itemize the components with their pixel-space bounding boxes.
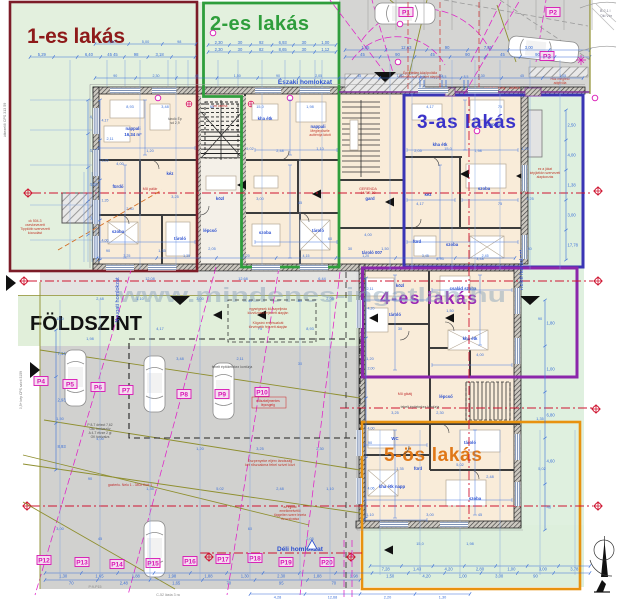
svg-text:90: 90 [368, 441, 372, 445]
svg-text:1,05: 1,05 [559, 74, 566, 78]
svg-text:2,05: 2,05 [315, 74, 322, 78]
svg-text:1,10: 1,10 [136, 297, 143, 301]
svg-text:tároló: tároló [312, 228, 324, 233]
svg-text:3-as lakás: 3-as lakás [417, 112, 516, 133]
svg-text:3,00: 3,00 [495, 574, 504, 579]
svg-text:4,00: 4,00 [102, 239, 109, 243]
svg-text:P13: P13 [76, 560, 88, 567]
svg-text:1,98: 1,98 [466, 542, 473, 546]
svg-text:3,00: 3,00 [568, 213, 577, 218]
svg-text:1,00: 1,00 [321, 40, 330, 45]
svg-text:8,5: 8,5 [464, 75, 469, 79]
svg-text:sd 2,9: sd 2,9 [170, 121, 179, 125]
svg-text:lépcső: lépcső [439, 394, 453, 399]
svg-text:P19: P19 [280, 560, 292, 567]
svg-text:45: 45 [195, 74, 199, 78]
svg-text:45: 45 [430, 52, 435, 57]
svg-text:30: 30 [238, 47, 243, 52]
svg-text:3,25: 3,25 [102, 159, 109, 163]
svg-text:15,0: 15,0 [256, 105, 263, 109]
svg-text:2,48: 2,48 [120, 581, 129, 586]
svg-text:14/7/5,28: 14/7/5,28 [361, 191, 376, 195]
svg-text:4,20: 4,20 [445, 567, 454, 572]
svg-text:két rőszcakma febel szível köz: két rőszcakma febel szível közt [245, 463, 295, 467]
svg-text:4,00: 4,00 [116, 162, 123, 166]
svg-text:12,63: 12,63 [401, 45, 412, 50]
svg-text:45 45: 45 45 [107, 52, 118, 57]
svg-text:1-es lakás: 1-es lakás [27, 25, 125, 48]
svg-text:1,20: 1,20 [366, 357, 373, 361]
svg-text:1,12: 1,12 [321, 47, 330, 52]
svg-text:P1: P1 [402, 10, 410, 17]
svg-text:P14: P14 [111, 562, 123, 569]
svg-text:82: 82 [259, 47, 264, 52]
svg-text:6,40: 6,40 [85, 52, 94, 57]
svg-text:98: 98 [177, 40, 181, 44]
svg-text:15,0: 15,0 [444, 147, 451, 151]
svg-text:2,80: 2,80 [476, 567, 485, 572]
svg-text:95: 95 [279, 581, 284, 586]
svg-text:1,10: 1,10 [316, 147, 323, 151]
svg-text:1,88: 1,88 [132, 574, 141, 579]
svg-text:2,48: 2,48 [486, 475, 493, 479]
svg-text:P18: P18 [249, 556, 261, 563]
svg-text:gazterlu. Nelu 1 - 340z Kurt 1: gazterlu. Nelu 1 - 340z Kurt 1 [108, 483, 152, 487]
svg-text:90: 90 [538, 317, 542, 321]
svg-text:16,34 m²: 16,34 m² [124, 132, 142, 137]
svg-text:2,05: 2,05 [414, 149, 421, 153]
svg-text:70: 70 [69, 581, 74, 586]
svg-text:92: 92 [259, 40, 264, 45]
svg-text:1,50: 1,50 [234, 74, 241, 78]
svg-text:2,20: 2,20 [384, 596, 391, 600]
svg-text:12,68: 12,68 [328, 596, 338, 600]
svg-text:1,38: 1,38 [568, 183, 577, 188]
svg-text:alapkonzás: alapkonzás [537, 175, 554, 179]
svg-text:2,48: 2,48 [276, 487, 283, 491]
svg-text:4,28: 4,28 [274, 596, 281, 600]
svg-text:5,02: 5,02 [538, 467, 545, 471]
svg-text:P4: P4 [37, 379, 45, 386]
svg-text:OK forrlvalzs: OK forrlvalzs [91, 435, 110, 439]
svg-text:40: 40 [547, 505, 552, 510]
svg-text:2,11: 2,11 [366, 287, 373, 291]
svg-text:90: 90 [88, 477, 92, 481]
svg-text:közvözásra fejtezett alapján: közvözásra fejtezett alapján [248, 311, 289, 315]
svg-text:1,80: 1,80 [547, 321, 556, 326]
svg-text:45: 45 [360, 52, 365, 57]
svg-text:30: 30 [302, 40, 307, 45]
svg-text:3,48: 3,48 [176, 357, 183, 361]
svg-text:4,20: 4,20 [422, 574, 431, 579]
svg-text:lépcsgelg: lépcsgelg [261, 403, 275, 407]
svg-text:szoba: szoba [478, 186, 491, 191]
svg-text:P10: P10 [256, 390, 268, 397]
svg-text:4,17: 4,17 [426, 105, 433, 109]
svg-text:P9: P9 [218, 392, 226, 399]
svg-text:2,30: 2,30 [316, 447, 323, 451]
svg-text:3,18: 3,18 [156, 52, 165, 57]
svg-text:3,25: 3,25 [256, 447, 263, 451]
svg-text:4,17: 4,17 [156, 327, 163, 331]
svg-text:7,28: 7,28 [382, 567, 391, 572]
svg-text:90: 90 [276, 74, 280, 78]
svg-text:rlv szzivatsa: rlv szzivatsa [281, 517, 299, 521]
svg-text:3,25: 3,25 [123, 254, 130, 258]
svg-text:5,29: 5,29 [38, 52, 47, 57]
svg-text:6,80: 6,80 [547, 413, 556, 418]
svg-text:kha étk napp: kha étk napp [379, 484, 406, 489]
svg-text:90: 90 [395, 52, 400, 57]
svg-text:6,93: 6,93 [279, 40, 288, 45]
svg-text:17,78: 17,78 [568, 243, 579, 248]
svg-text:1,98: 1,98 [350, 574, 359, 579]
svg-text:1,88: 1,88 [204, 574, 213, 579]
svg-text:2,11: 2,11 [106, 137, 113, 141]
svg-text:8,93: 8,93 [58, 444, 67, 449]
svg-text:fürd: fürd [413, 239, 422, 244]
svg-text:45: 45 [478, 513, 482, 517]
svg-text:2,30: 2,30 [478, 74, 485, 78]
svg-text:12,08: 12,08 [145, 277, 155, 281]
svg-text:3,00: 3,00 [256, 197, 263, 201]
svg-text:30: 30 [302, 47, 307, 52]
svg-text:1,30: 1,30 [439, 596, 446, 600]
svg-text:2,05: 2,05 [208, 247, 215, 251]
svg-text:60: 60 [210, 105, 214, 109]
svg-text:1,20: 1,20 [362, 254, 369, 258]
svg-text:4,00: 4,00 [368, 427, 375, 431]
svg-text:70: 70 [226, 581, 231, 586]
svg-text:2,11: 2,11 [236, 357, 243, 361]
svg-text:1,50: 1,50 [386, 574, 395, 579]
svg-text:2,30: 2,30 [436, 411, 443, 415]
svg-text:90: 90 [439, 74, 443, 78]
svg-text:3,00: 3,00 [525, 45, 534, 50]
svg-text:2-es lakás: 2-es lakás [210, 13, 309, 35]
svg-text:12,68: 12,68 [238, 277, 248, 281]
svg-text:1,00: 1,00 [507, 567, 516, 572]
svg-text:1,20: 1,20 [243, 254, 250, 258]
svg-text:P:9-P15: P:9-P15 [89, 585, 102, 589]
svg-text:P8: P8 [180, 392, 188, 399]
svg-text:2,30: 2,30 [153, 74, 160, 78]
svg-text:kha étk: kha étk [258, 116, 273, 121]
svg-text:1,50: 1,50 [381, 247, 388, 251]
svg-text:P16: P16 [184, 559, 196, 566]
svg-text:Nyugati homlokzat: Nyugati homlokzat [115, 277, 121, 323]
svg-text:gard: gard [365, 196, 375, 201]
svg-text:30: 30 [398, 327, 402, 331]
svg-text:2,00: 2,00 [368, 367, 375, 371]
svg-text:2,30: 2,30 [277, 574, 286, 579]
svg-text:1,10: 1,10 [366, 513, 373, 517]
svg-text:5-ös lakás: 5-ös lakás [384, 445, 482, 466]
svg-text:szoba: szoba [446, 242, 459, 247]
svg-text:4,00: 4,00 [90, 182, 99, 187]
svg-text:3,45: 3,45 [422, 254, 429, 258]
svg-text:90: 90 [106, 249, 110, 253]
svg-text:2,48: 2,48 [276, 149, 283, 153]
svg-text:nappali: nappali [125, 126, 140, 131]
svg-text:1,65: 1,65 [172, 581, 181, 586]
svg-text:P20: P20 [321, 560, 333, 567]
svg-text:P12: P12 [38, 558, 50, 565]
svg-text:fürd: fürd [414, 466, 423, 471]
svg-text:5,02: 5,02 [246, 147, 253, 151]
svg-text:70: 70 [331, 581, 336, 586]
svg-text:1,05: 1,05 [361, 45, 370, 50]
svg-text:P7: P7 [122, 388, 130, 395]
svg-text:1,43: 1,43 [413, 567, 422, 572]
svg-text:1,30: 1,30 [59, 574, 68, 579]
svg-text:szoba: szoba [112, 229, 125, 234]
svg-text:2,30: 2,30 [126, 207, 133, 211]
svg-text:1,98: 1,98 [168, 574, 177, 579]
svg-text:1,20: 1,20 [521, 147, 528, 151]
svg-text:4,00: 4,00 [364, 233, 371, 237]
svg-text:P2: P2 [549, 10, 557, 17]
svg-text:98: 98 [134, 52, 139, 57]
svg-text:tebelt építekekez kontúrja: tebelt építekekez kontúrja [401, 405, 440, 409]
svg-text:1,50: 1,50 [446, 309, 453, 313]
svg-text:8,65: 8,65 [279, 47, 288, 52]
svg-text:8,93: 8,93 [126, 105, 133, 109]
svg-text:autténtja látott: autténtja látott [309, 133, 330, 137]
svg-text:6,40: 6,40 [108, 40, 115, 44]
svg-text:90: 90 [535, 52, 540, 57]
svg-text:4,20: 4,20 [368, 307, 375, 311]
svg-text:5,02: 5,02 [216, 487, 223, 491]
svg-text:Déli homlokzat: Déli homlokzat [277, 546, 324, 553]
svg-text:8,93: 8,93 [306, 327, 313, 331]
svg-text:45: 45 [357, 74, 361, 78]
svg-text:1,20: 1,20 [146, 149, 153, 153]
svg-text:P17: P17 [217, 557, 229, 564]
svg-text:1,98: 1,98 [86, 337, 93, 341]
svg-text:1,35: 1,35 [536, 417, 543, 421]
svg-text:3,00: 3,00 [426, 513, 433, 517]
svg-text:1,30: 1,30 [241, 574, 250, 579]
svg-text:1,98: 1,98 [306, 105, 313, 109]
svg-text:kéz: kéz [167, 171, 174, 176]
svg-text:1,98: 1,98 [474, 149, 481, 153]
svg-text:5,00: 5,00 [142, 40, 149, 44]
svg-text:Mű gikátj: Mű gikátj [398, 392, 413, 396]
svg-text:lépcső: lépcső [203, 228, 217, 233]
svg-text:90: 90 [113, 74, 117, 78]
svg-text:30: 30 [238, 40, 243, 45]
svg-text:45: 45 [500, 52, 505, 57]
svg-text:4,17: 4,17 [416, 202, 423, 206]
svg-text:4,60: 4,60 [547, 459, 556, 464]
svg-text:2,30: 2,30 [215, 40, 224, 45]
svg-text:60: 60 [328, 237, 332, 241]
svg-text:6,44: 6,44 [318, 277, 325, 281]
svg-text:C-52 lásta 3 ra: C-52 lásta 3 ra [156, 593, 180, 597]
svg-text:1,35: 1,35 [396, 467, 403, 471]
svg-text:90: 90 [465, 52, 470, 57]
svg-text:4,06: 4,06 [368, 487, 375, 491]
svg-text:90: 90 [533, 574, 538, 579]
svg-text:1,50: 1,50 [397, 74, 404, 78]
svg-text:1,00: 1,00 [547, 367, 556, 372]
svg-text:P6: P6 [94, 385, 102, 392]
svg-text:2,45: 2,45 [482, 254, 489, 258]
svg-text:szoba: szoba [259, 230, 272, 235]
svg-text:fürdő: fürdő [113, 184, 124, 189]
svg-text:FÖLDSZINT: FÖLDSZINT [30, 312, 142, 335]
svg-text:4,00: 4,00 [568, 153, 577, 158]
svg-text:febelt építóletekez kontúrja: febelt építóletekez kontúrja [212, 365, 253, 369]
svg-text:2,50: 2,50 [568, 123, 577, 128]
svg-text:2,93: 2,93 [58, 398, 67, 403]
svg-text:P15: P15 [147, 561, 159, 568]
svg-text:3,25: 3,25 [171, 195, 178, 199]
svg-text:közl: közl [216, 196, 224, 201]
svg-text:1,35: 1,35 [102, 199, 109, 203]
svg-text:Mű pálär: Mű pálär [143, 187, 159, 191]
svg-text:2,30: 2,30 [215, 47, 224, 52]
svg-text:kha étk: kha étk [463, 336, 478, 341]
svg-text:30: 30 [348, 247, 352, 251]
svg-text:1,35: 1,35 [158, 249, 165, 253]
svg-text:kócsolást: kócsolást [28, 231, 42, 235]
svg-text:90: 90 [445, 45, 450, 50]
svg-text:P5: P5 [66, 382, 74, 389]
svg-text:vm cserta: vm cserta [213, 104, 228, 108]
svg-text:0,5+ kép CPS szivít 3159: 0,5+ kép CPS szivít 3159 [19, 371, 23, 409]
svg-text:7,85: 7,85 [484, 45, 493, 50]
svg-text:1,88: 1,88 [313, 574, 322, 579]
svg-text:4,00: 4,00 [476, 353, 483, 357]
svg-text:45: 45 [520, 74, 524, 78]
svg-text:törvényétb fejezett alapján: törvényétb fejezett alapján [249, 325, 288, 329]
svg-text:7,14: 7,14 [58, 351, 67, 356]
svg-text:3,25: 3,25 [391, 411, 398, 415]
svg-text:3,48: 3,48 [161, 105, 168, 109]
svg-text:1,35: 1,35 [183, 254, 190, 258]
svg-text:3,78: 3,78 [570, 567, 579, 572]
svg-text:útkezelői CPS 313 59: útkezelői CPS 313 59 [3, 103, 7, 138]
svg-text:4,17: 4,17 [102, 119, 109, 123]
svg-text:4,15: 4,15 [303, 254, 310, 258]
